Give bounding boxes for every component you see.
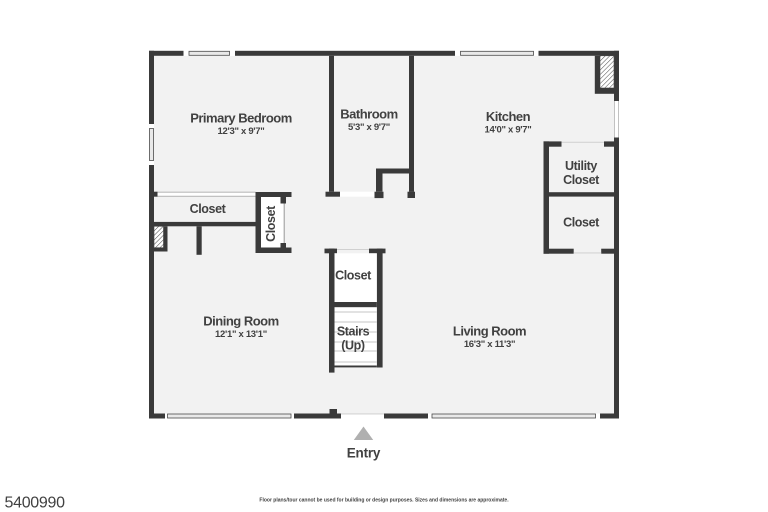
svg-text:16'3" x 11'3": 16'3" x 11'3" — [464, 339, 515, 350]
svg-text:(Up): (Up) — [341, 339, 365, 353]
svg-text:Closet: Closet — [190, 202, 227, 216]
svg-text:Closet: Closet — [264, 205, 278, 242]
svg-text:Floor plans/tour cannot be use: Floor plans/tour cannot be used for buil… — [259, 498, 509, 504]
svg-text:Closet: Closet — [335, 269, 372, 283]
svg-text:5'3" x 9'7": 5'3" x 9'7" — [348, 122, 390, 133]
svg-text:Closet: Closet — [563, 216, 600, 230]
svg-text:5400990: 5400990 — [5, 495, 66, 512]
svg-text:12'3" x 9'7": 12'3" x 9'7" — [218, 126, 265, 137]
svg-text:Entry: Entry — [347, 446, 381, 461]
svg-text:12'1" x 13'1": 12'1" x 13'1" — [215, 329, 267, 340]
svg-text:Bathroom: Bathroom — [340, 106, 397, 121]
svg-text:Closet: Closet — [563, 173, 600, 187]
svg-text:Kitchen: Kitchen — [486, 109, 531, 124]
svg-text:14'0" x 9'7": 14'0" x 9'7" — [485, 124, 532, 135]
svg-text:Utility: Utility — [565, 159, 597, 173]
svg-text:Dining Room: Dining Room — [203, 313, 278, 328]
svg-text:Stairs: Stairs — [337, 325, 370, 339]
svg-text:Living Room: Living Room — [453, 323, 526, 338]
svg-text:Primary Bedroom: Primary Bedroom — [190, 110, 292, 125]
